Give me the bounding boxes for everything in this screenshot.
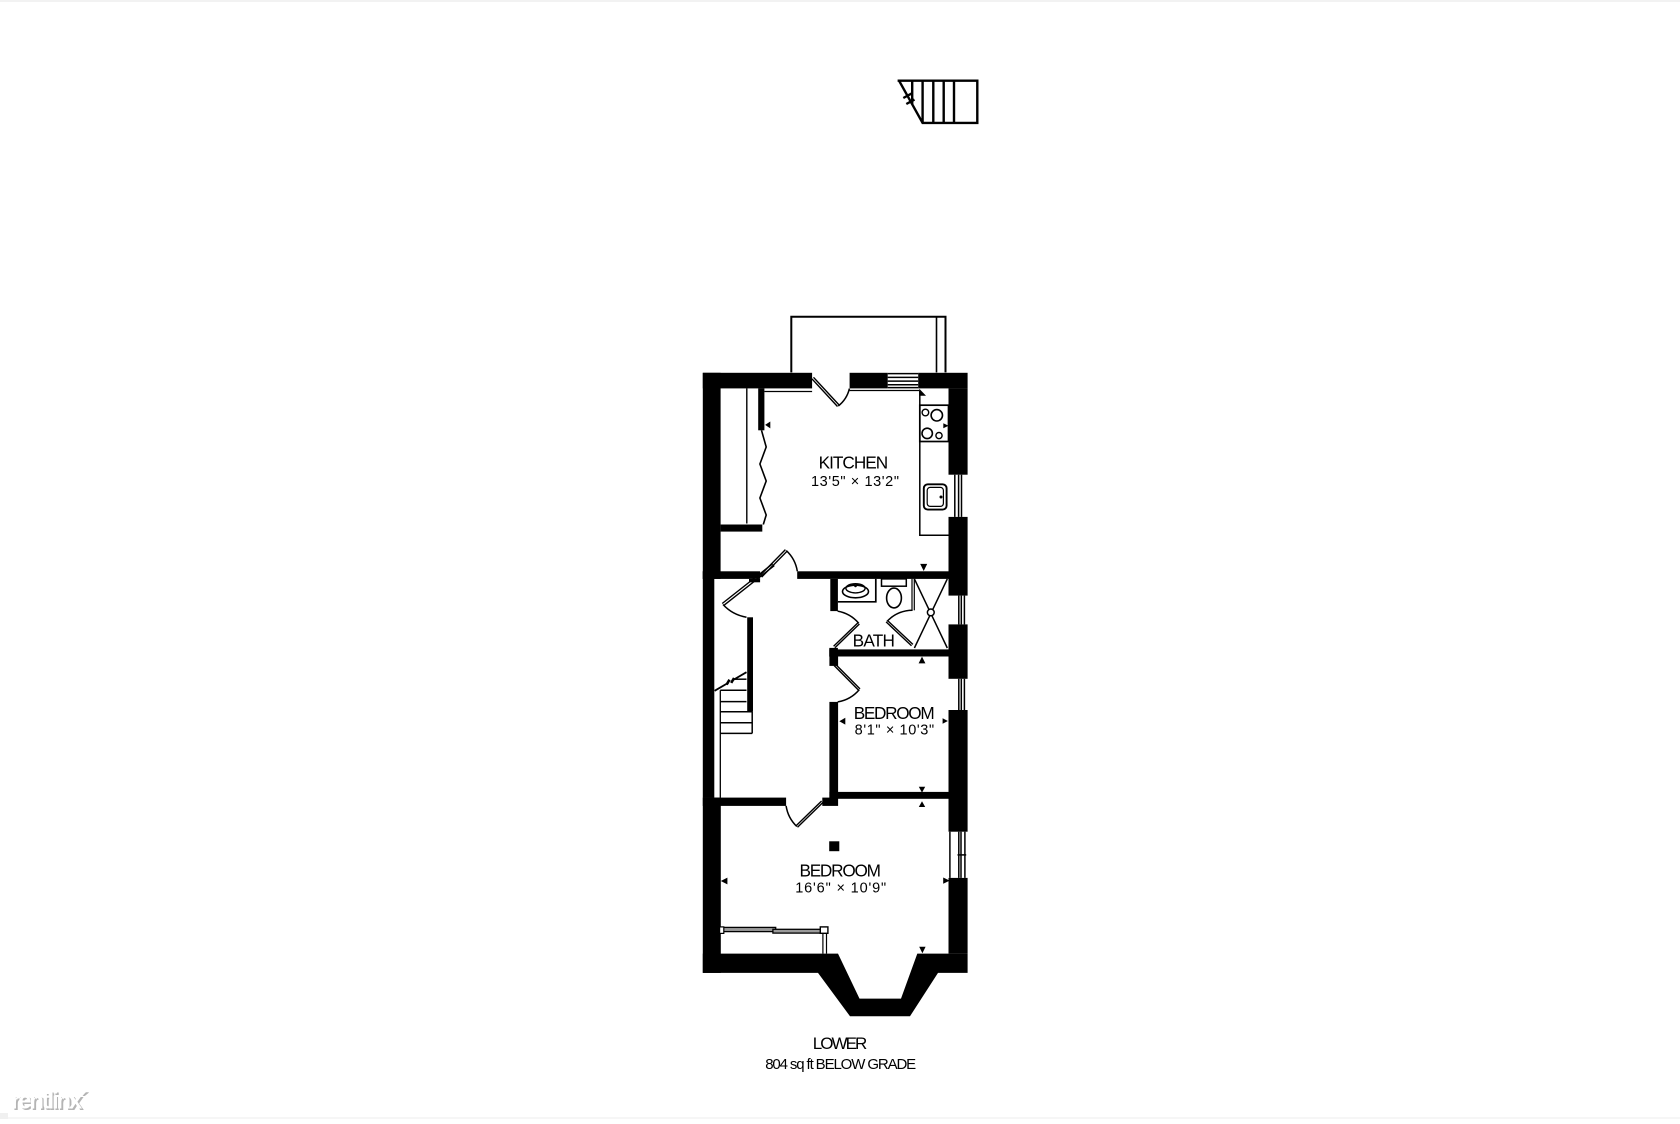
svg-text:KITCHEN: KITCHEN <box>819 453 889 473</box>
svg-text:BEDROOM: BEDROOM <box>799 860 881 880</box>
svg-text:16'6" × 10'9": 16'6" × 10'9" <box>795 881 886 897</box>
svg-text:804 sq ft BELOW GRADE: 804 sq ft BELOW GRADE <box>765 1056 916 1073</box>
svg-text:LOWER: LOWER <box>813 1034 868 1053</box>
svg-text:13'5" × 13'2": 13'5" × 13'2" <box>811 474 899 490</box>
svg-text:BEDROOM: BEDROOM <box>854 703 935 723</box>
svg-text:8'1" × 10'3": 8'1" × 10'3" <box>855 723 935 739</box>
svg-text:rentlinx´: rentlinx´ <box>11 1088 88 1115</box>
svg-text:BATH: BATH <box>853 631 895 651</box>
